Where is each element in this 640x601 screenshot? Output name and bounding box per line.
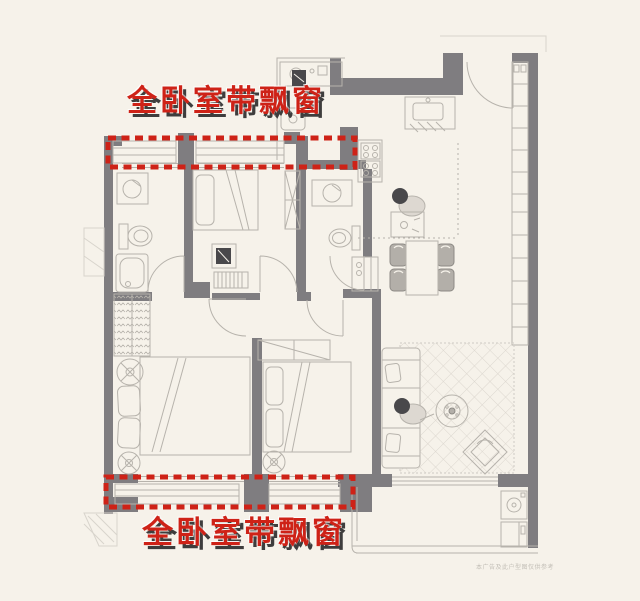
dresser bbox=[258, 340, 330, 360]
bedroom-2 bbox=[193, 170, 300, 292]
bathtub-icon bbox=[116, 254, 148, 292]
bay-windows-bottom bbox=[115, 477, 340, 505]
person-cooking bbox=[391, 188, 425, 237]
bedroom-3 bbox=[258, 300, 351, 473]
disclaimer-text: 本广告及此户型图仅供参考 bbox=[476, 562, 554, 571]
toilet-icon bbox=[329, 226, 360, 250]
dining-table bbox=[406, 241, 438, 295]
balcony-window bbox=[392, 477, 498, 485]
fridge-niche bbox=[352, 257, 378, 291]
toilet-icon bbox=[119, 224, 152, 249]
fan-stool-icon bbox=[263, 451, 285, 473]
storage-cabinet bbox=[512, 62, 528, 345]
fan-stool-icon bbox=[117, 359, 143, 385]
master-bed bbox=[117, 357, 250, 455]
bed-3 bbox=[263, 362, 351, 452]
balcony-cabinet bbox=[501, 522, 527, 547]
kitchen bbox=[358, 97, 458, 238]
washing-machine-icon bbox=[501, 491, 527, 519]
ac-platform-bottom bbox=[84, 513, 117, 546]
dresser bbox=[214, 272, 248, 288]
balcony bbox=[352, 487, 538, 553]
dining-set bbox=[390, 241, 454, 295]
living-room bbox=[382, 343, 514, 485]
walls bbox=[104, 53, 538, 548]
bathroom2-door-arc bbox=[330, 256, 364, 290]
floor-plan-page: { "canvas": { "width": 640, "height": 60… bbox=[0, 0, 640, 601]
bedroom3-door-arc bbox=[307, 300, 343, 336]
entry-door-arc bbox=[467, 62, 513, 108]
bathroom-1 bbox=[116, 173, 184, 292]
desk-tv bbox=[212, 244, 236, 268]
bedroom2-door-arc bbox=[260, 256, 297, 292]
master-bedroom bbox=[114, 294, 250, 474]
wardrobe-icon bbox=[285, 171, 300, 229]
bay-window-caption-top: 全卧室带飘窗 bbox=[127, 87, 325, 117]
bay-windows-top bbox=[113, 141, 284, 168]
bathroom1-door-arc bbox=[148, 256, 184, 292]
bed-2 bbox=[193, 170, 258, 230]
sink-icon bbox=[123, 180, 141, 198]
sink-icon bbox=[323, 184, 341, 202]
bay-window-caption-bottom: 全卧室带飘窗 bbox=[142, 517, 346, 548]
fan-stool-icon bbox=[118, 452, 140, 474]
eave-lines bbox=[440, 36, 546, 52]
ac-platform-left bbox=[84, 228, 104, 276]
master-door-arc bbox=[209, 299, 246, 336]
